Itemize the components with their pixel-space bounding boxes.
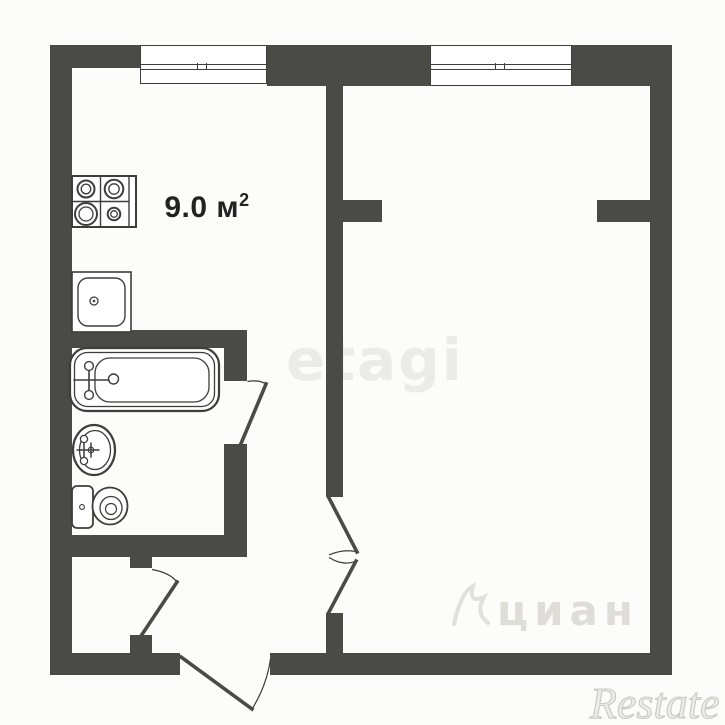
wall-divider-lower — [326, 613, 343, 653]
room-double-door-swing-icon — [329, 498, 357, 612]
wall-outer-right — [650, 45, 672, 675]
watermark-restate: Restate — [590, 678, 720, 725]
wall-outer-left — [50, 45, 72, 675]
wall-bathroom-top — [72, 330, 247, 348]
closet-door-swing-icon — [141, 570, 177, 637]
watermark-cian: циан — [497, 586, 639, 635]
watermark-etagi: etagi — [286, 326, 464, 394]
wall-closet-stub-bottom — [130, 635, 152, 653]
wall-outer-top-left — [50, 45, 140, 68]
wall-outer-top-mid — [267, 45, 430, 86]
kitchen-sink-icon — [72, 272, 131, 332]
wall-stub-room-right — [597, 200, 650, 222]
bathtub-icon — [70, 348, 219, 411]
floor-plan: etagi циан Restate 9.0 м2 — [0, 0, 725, 725]
wall-bathroom-right-upper — [224, 348, 247, 381]
wall-kitchen-room-divider — [326, 86, 343, 497]
cian-logo-icon — [448, 580, 494, 630]
washbasin-icon — [73, 425, 115, 475]
entry-door-swing-icon — [181, 657, 271, 709]
wall-stub-room-left — [343, 200, 382, 222]
wall-closet-stub-top — [130, 557, 152, 568]
room-window-icon — [430, 45, 572, 86]
wall-bathroom-bottom — [72, 535, 247, 557]
wall-outer-bottom-left — [50, 653, 180, 675]
bathroom-door-swing-icon — [240, 381, 266, 446]
kitchen-area-label: 9.0 м2 — [157, 190, 257, 225]
kitchen-area-value: 9.0 м — [164, 191, 239, 224]
stove-icon — [72, 176, 136, 227]
kitchen-area-sup: 2 — [239, 190, 250, 210]
toilet-icon — [72, 486, 128, 528]
kitchen-window-icon — [140, 45, 267, 84]
wall-outer-bottom-right — [270, 653, 672, 675]
